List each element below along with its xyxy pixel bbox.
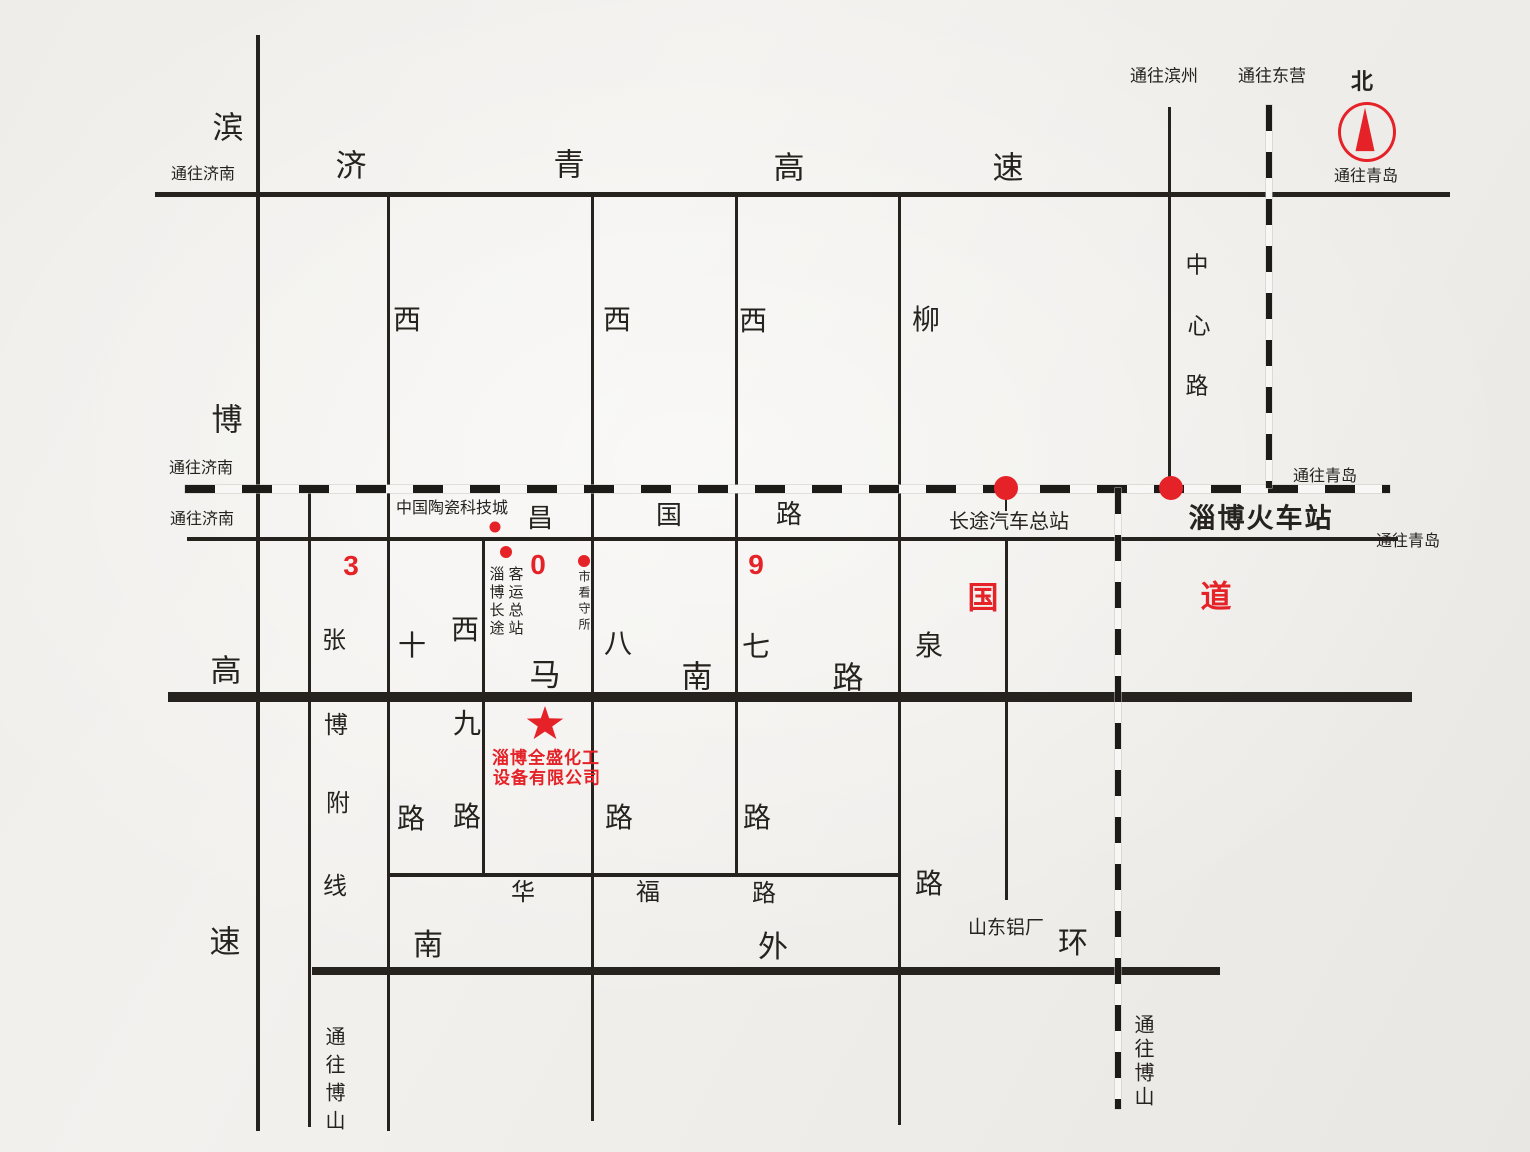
xi-jiu-char-xi: 西 — [451, 616, 479, 644]
xi-ba-char-lu: 路 — [605, 804, 633, 832]
detention-dot — [578, 555, 590, 567]
road-manan — [168, 692, 1412, 702]
road-xi-qi — [735, 195, 738, 876]
to-qingdao-label-changguo: 通往青岛 — [1376, 534, 1440, 550]
road-xi-shi — [387, 195, 390, 1131]
company-star-icon — [526, 706, 564, 742]
jiqing-char-qing: 青 — [554, 150, 585, 181]
binbo-char-bo: 博 — [212, 405, 243, 436]
binbo-char-gao: 高 — [211, 656, 242, 687]
ring-char-wai: 外 — [758, 933, 788, 963]
ring-char-nan: 南 — [413, 931, 443, 961]
g309-char-dao: 道 — [1201, 582, 1232, 613]
jiqing-char-gao: 高 — [774, 153, 805, 184]
north-label: 北 — [1351, 71, 1373, 93]
road-jiqing-expressway — [155, 192, 1450, 197]
railway-boshan-branch — [1115, 488, 1121, 1109]
huafu-char-hua: 华 — [511, 881, 535, 905]
liuquan-char-liu: 柳 — [912, 306, 940, 334]
road-xi-jiu — [482, 539, 485, 876]
ceramic-city-dot — [490, 522, 501, 533]
xi-shi-char-xi: 西 — [393, 306, 421, 334]
to-jinan-label-changguo: 通往济南 — [170, 512, 234, 528]
bus-terminal-label-col1: 淄博长途 — [489, 566, 504, 638]
railway-dongying-branch — [1266, 105, 1272, 488]
railway-jiaoji — [185, 485, 1390, 493]
huafu-char-lu: 路 — [752, 882, 776, 906]
railway-station-dot — [1159, 476, 1183, 500]
ceramic-tech-city-label: 中国陶瓷科技城 — [396, 501, 508, 517]
changguo-char-chang: 昌 — [527, 505, 553, 531]
road-huafu — [390, 873, 901, 877]
g309-digit-3: 3 — [343, 552, 359, 580]
coach-station-dot — [994, 476, 1018, 500]
xi-jiu-char-lu: 路 — [453, 803, 481, 831]
to-boshan-label-road: 通往博山 — [323, 1026, 343, 1138]
jiqing-char-ji: 济 — [336, 151, 367, 182]
xi-qi-char-qi: 七 — [742, 633, 770, 661]
shandong-aluminum-label: 山东铝厂 — [968, 919, 1044, 938]
changguo-char-lu: 路 — [776, 501, 802, 527]
manan-char-lu: 路 — [833, 663, 864, 694]
xi-ba-char-ba: 八 — [604, 630, 632, 658]
bus-terminal-dot — [500, 546, 512, 558]
g309-char-guo: 国 — [968, 583, 999, 614]
zhangbo-char-fu: 附 — [326, 792, 350, 816]
xi-shi-char-lu: 路 — [397, 805, 425, 833]
liuquan-char-lu: 路 — [915, 870, 943, 898]
manan-char-nan: 南 — [682, 662, 713, 693]
xi-ba-char-xi: 西 — [603, 306, 631, 334]
company-name-line2: 设备有限公司 — [493, 770, 601, 787]
zhongxin-char-lu: 路 — [1186, 375, 1209, 398]
to-jinan-label-top: 通往济南 — [171, 167, 235, 183]
xi-shi-char-shi: 十 — [398, 632, 426, 660]
zibo-railway-station-label: 淄博火车站 — [1189, 506, 1334, 533]
g309-digit-0: 0 — [530, 551, 546, 579]
ring-char-huan: 环 — [1058, 929, 1088, 959]
road-zhongxin — [1168, 107, 1171, 488]
xi-jiu-char-jiu: 九 — [453, 710, 481, 738]
to-qingdao-label-top: 通往青岛 — [1334, 169, 1398, 185]
changguo-char-guo: 国 — [656, 502, 682, 528]
manan-char-ma: 马 — [530, 660, 561, 691]
zhongxin-char-zhong: 中 — [1186, 254, 1209, 277]
liuquan-char-quan: 泉 — [915, 632, 943, 660]
zhangbo-char-bo: 博 — [324, 714, 348, 738]
xi-qi-char-lu: 路 — [743, 804, 771, 832]
bus-terminal-label-col2: 客运总站 — [508, 566, 523, 638]
road-xi-ba — [591, 195, 594, 1121]
to-dongying-label: 通往东营 — [1238, 68, 1306, 85]
jiqing-char-su: 速 — [993, 153, 1024, 184]
coach-terminal-label: 长途汽车总站 — [949, 512, 1069, 532]
zhangbo-char-zhang: 张 — [322, 629, 346, 653]
road-bus-terminal-street — [1005, 539, 1008, 900]
company-name-line1: 淄博全盛化工 — [492, 750, 600, 767]
road-changguo — [187, 537, 1398, 541]
binbo-char-su: 速 — [210, 927, 241, 958]
road-south-outer-ring — [312, 967, 1220, 975]
binbo-char-bin: 滨 — [213, 113, 244, 144]
zhangbo-char-xian: 线 — [323, 875, 347, 899]
to-binzhou-label: 通往滨州 — [1130, 68, 1198, 85]
to-boshan-label-rail: 通往博山 — [1132, 1014, 1152, 1110]
detention-house-label: 市看守所 — [578, 570, 590, 634]
road-binbo-expressway — [256, 35, 260, 1131]
road-zhangbo-branch — [308, 488, 311, 1127]
to-qingdao-label-rail: 通往青岛 — [1293, 469, 1357, 485]
to-jinan-label-rail: 通往济南 — [169, 461, 233, 477]
huafu-char-fu: 福 — [636, 881, 660, 905]
g309-digit-9: 9 — [748, 551, 764, 579]
road-liuquan — [898, 195, 901, 1125]
zhongxin-char-xin: 心 — [1188, 315, 1211, 338]
xi-qi-char-xi: 西 — [739, 307, 767, 335]
zibo-location-map: 通往济南 济 青 高 速 通往青岛 通往滨州 通往东营 北 滨 博 高 速 通往… — [0, 0, 1530, 1152]
